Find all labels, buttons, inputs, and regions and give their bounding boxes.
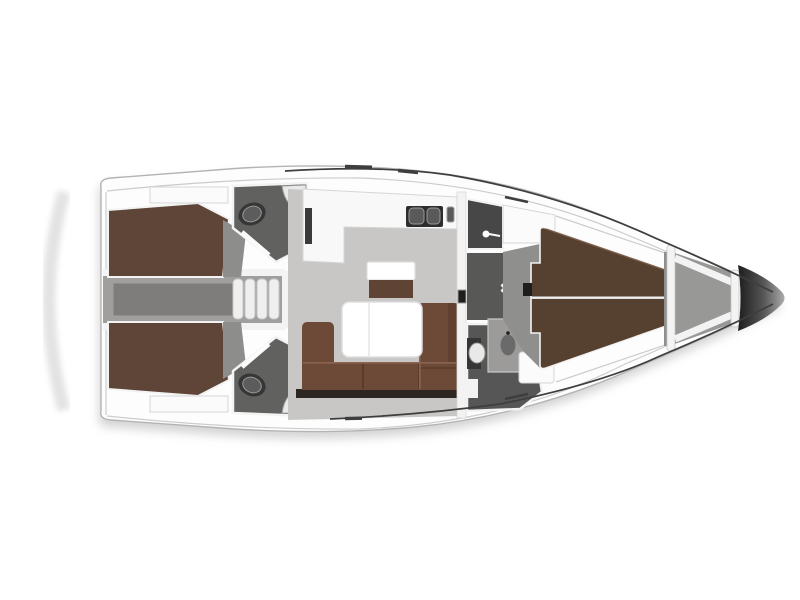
shower-head-icon	[483, 231, 490, 238]
bulkhead-panel	[458, 290, 466, 303]
sofa-left-arm	[302, 322, 334, 390]
step-tread	[245, 279, 255, 319]
shower-compartment	[467, 199, 503, 249]
galley-fitting	[447, 207, 454, 222]
bow-group	[664, 245, 785, 351]
companionway-group	[103, 269, 288, 330]
passage-floor	[467, 253, 503, 320]
vanity-faucet	[506, 331, 510, 335]
engine-hatch	[113, 283, 235, 316]
aft-cabinet-bottom	[150, 396, 228, 412]
toilet-bowl	[469, 343, 485, 363]
berth-step-notch	[523, 283, 532, 296]
transom-arc	[49, 192, 64, 410]
deck-fitting-dash	[345, 167, 372, 168]
companionway-side-wall	[282, 271, 288, 328]
salon-table	[342, 302, 422, 357]
salon-group	[288, 189, 466, 420]
aft-berth-top	[108, 203, 229, 277]
vanity-basin	[500, 334, 516, 356]
galley-oven-strip	[305, 208, 312, 244]
mid-head-shelf	[461, 379, 478, 398]
yacht-floorplan-canvas	[0, 0, 800, 600]
salon-stool-top	[367, 262, 415, 280]
aft-berth-bottom	[108, 322, 229, 396]
sailing-yacht-floor-plan	[0, 0, 800, 600]
aft-cabinet-top	[150, 187, 228, 203]
step-tread	[269, 279, 279, 319]
step-tread	[233, 279, 243, 319]
sofa-plinth	[296, 389, 457, 398]
bow-tip	[738, 265, 785, 331]
deck-fitting-dash	[398, 171, 418, 173]
sink-basin-left	[409, 208, 424, 224]
salon-stool-base	[369, 280, 413, 298]
sink-basin-right	[427, 208, 440, 224]
locker-strut-vertical-fwd	[731, 270, 739, 327]
step-tread	[257, 279, 267, 319]
